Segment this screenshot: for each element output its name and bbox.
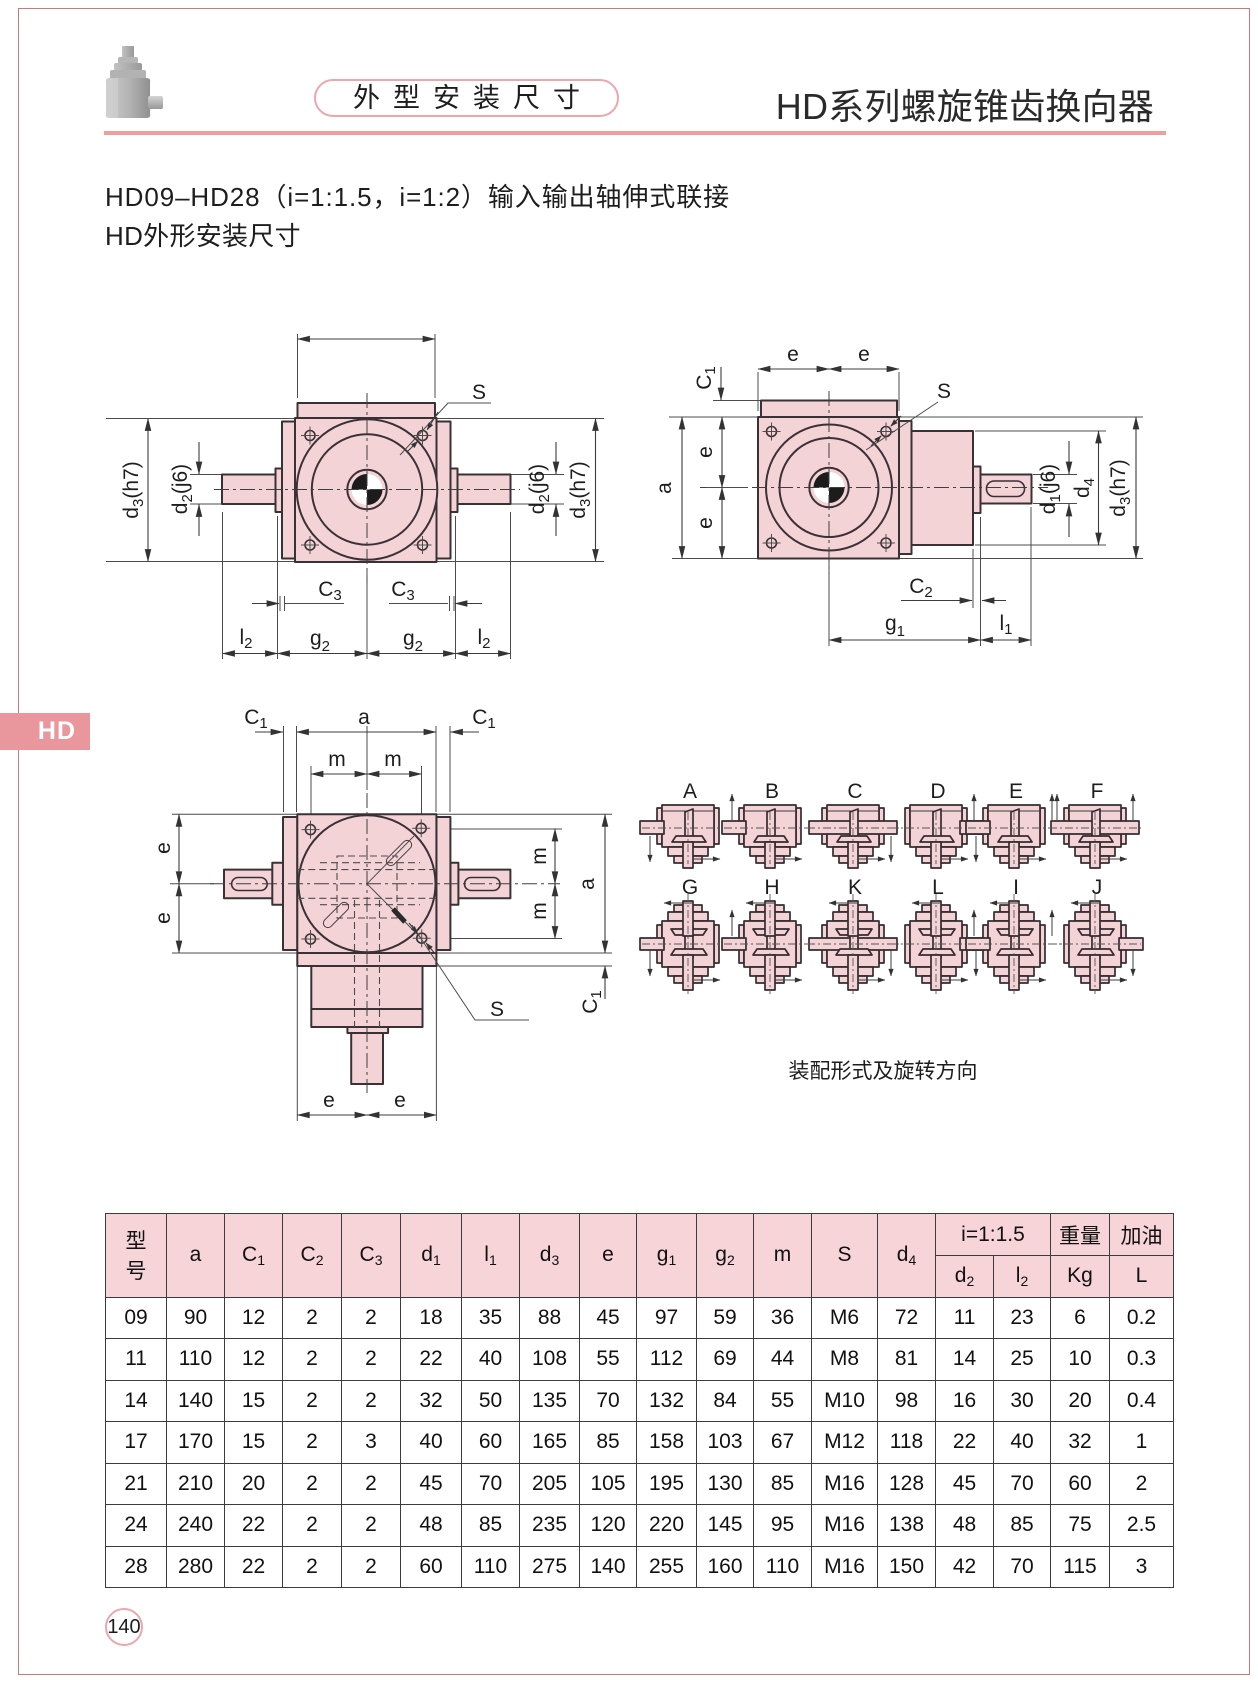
svg-text:g1: g1 — [885, 612, 905, 640]
svg-text:H: H — [764, 876, 779, 899]
svg-text:e: e — [152, 842, 175, 854]
svg-text:e: e — [787, 343, 799, 366]
svg-text:C1: C1 — [244, 706, 268, 732]
svg-text:K: K — [848, 876, 862, 899]
svg-text:e: e — [394, 1089, 406, 1112]
svg-text:C: C — [847, 780, 862, 803]
svg-text:d3(h7): d3(h7) — [567, 461, 594, 518]
svg-text:d2(j6): d2(j6) — [169, 464, 196, 514]
svg-text:a: a — [576, 878, 599, 890]
svg-text:S: S — [490, 998, 504, 1021]
svg-text:L: L — [932, 876, 944, 899]
svg-text:e: e — [858, 343, 870, 366]
svg-text:C3: C3 — [318, 578, 342, 604]
svg-text:a: a — [653, 482, 676, 494]
svg-text:D: D — [930, 780, 945, 803]
svg-text:g2: g2 — [403, 627, 423, 655]
svg-text:e: e — [323, 1089, 335, 1112]
svg-text:e: e — [694, 517, 717, 529]
svg-text:d1(j6): d1(j6) — [1037, 464, 1064, 514]
svg-text:e: e — [694, 446, 717, 458]
svg-text:l2: l2 — [239, 626, 252, 652]
svg-text:d3(h7): d3(h7) — [1107, 459, 1134, 516]
svg-text:m: m — [528, 902, 551, 920]
svg-text:E: E — [1009, 780, 1023, 803]
svg-text:A: A — [683, 780, 697, 803]
svg-text:d4: d4 — [1071, 478, 1098, 498]
svg-text:C1: C1 — [472, 706, 496, 732]
svg-text:l1: l1 — [999, 612, 1012, 638]
svg-text:d3(h7): d3(h7) — [120, 461, 147, 518]
svg-text:l2: l2 — [477, 626, 490, 652]
svg-text:C3: C3 — [391, 578, 415, 604]
svg-text:装配形式及旋转方向: 装配形式及旋转方向 — [789, 1060, 978, 1083]
svg-text:C2: C2 — [909, 575, 933, 601]
svg-text:C1: C1 — [579, 990, 605, 1014]
svg-text:a: a — [358, 706, 370, 729]
svg-text:B: B — [765, 780, 779, 803]
svg-text:F: F — [1091, 780, 1104, 803]
svg-text:g2: g2 — [310, 627, 330, 655]
svg-text:m: m — [328, 748, 346, 771]
svg-text:m: m — [528, 847, 551, 865]
svg-text:C1: C1 — [693, 366, 719, 390]
svg-text:m: m — [384, 748, 402, 771]
svg-text:d2(j6): d2(j6) — [526, 464, 553, 514]
svg-text:S: S — [937, 380, 951, 403]
svg-text:S: S — [472, 381, 486, 404]
svg-text:J: J — [1092, 876, 1103, 899]
svg-text:G: G — [682, 876, 698, 899]
svg-text:e: e — [152, 912, 175, 924]
